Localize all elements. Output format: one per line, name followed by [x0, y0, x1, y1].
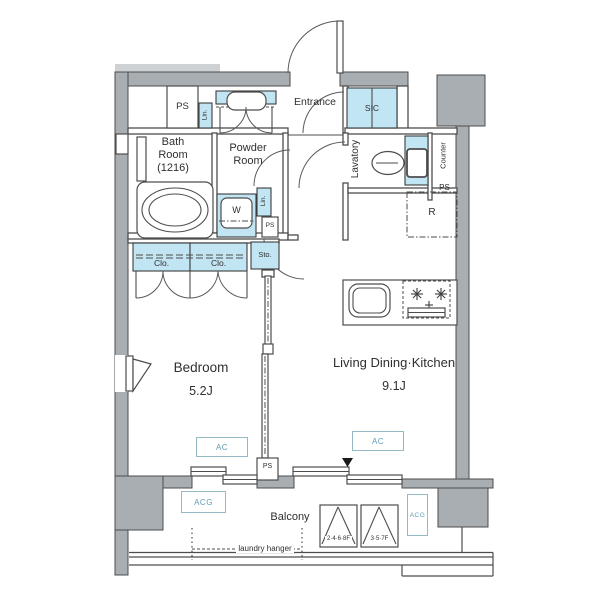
linen-label-1: Lin. [202, 104, 210, 125]
entrance-label: Entrance [283, 96, 347, 109]
toilet [372, 136, 428, 185]
hatch-label-odd: 3·5·7F [361, 536, 398, 543]
laundry-hanger-label: laundry hanger [212, 544, 318, 554]
bedroom-size: 5.2J [141, 384, 261, 399]
lavatory-label: Lavatory [350, 129, 362, 189]
closet-label-1: Clo. [133, 258, 190, 268]
hatch-odd-text: 3·5·7F [369, 536, 391, 542]
hatch-label-even: 2·4·6·8F [320, 536, 357, 543]
linen-label-2: Lin. [260, 190, 268, 212]
ps-label-right: PS [431, 183, 458, 193]
ac-box-bedroom: AC [196, 437, 248, 457]
closet-label-2: Clo. [190, 258, 247, 268]
ps-label-top: PS [167, 101, 198, 112]
bedroom-label: Bedroom 5.2J [141, 360, 261, 399]
washer-label: W [224, 205, 249, 216]
sliding-partition [262, 276, 273, 458]
acg-box-right: ACG [407, 494, 428, 536]
ldk-label: Living Dining·Kitchen 9.1J [310, 355, 478, 394]
ps-label-powder: PS [262, 222, 278, 230]
balcony-windows [191, 458, 402, 484]
bath-line2: Room [133, 149, 213, 162]
ps-label-bottom: PS [257, 463, 278, 471]
floorplan-drawing [0, 0, 600, 600]
kitchen-counter [343, 280, 457, 325]
powder-label: Powder Room [212, 142, 284, 168]
fridge-label: R [417, 207, 447, 219]
bedroom-name: Bedroom [141, 360, 261, 376]
laundry-hanger-text: laundry hanger [236, 544, 293, 553]
sic-label: SIC [347, 88, 397, 128]
bath-line3: (1216) [133, 162, 213, 175]
powder-line2: Room [212, 155, 284, 168]
powder-line1: Powder [212, 142, 284, 155]
bath-line1: Bath [133, 136, 213, 149]
ldk-size: 9.1J [310, 379, 478, 394]
counter-label: Counter [439, 134, 448, 178]
acg-box-left: ACG [181, 491, 226, 513]
storage-label: Sto. [251, 250, 279, 259]
bath-label: Bath Room (1216) [133, 136, 213, 176]
balcony-label: Balcony [255, 511, 325, 524]
ldk-name: Living Dining·Kitchen [310, 355, 478, 371]
washbasin [216, 91, 276, 133]
hatch-even-text: 2·4·6·8F [325, 536, 352, 542]
wall-shadow [115, 64, 220, 72]
entrance-door [288, 21, 344, 133]
closets [133, 243, 247, 298]
floorplan: Bedroom 5.2J Living Dining·Kitchen 9.1J … [0, 0, 600, 600]
direction-marker [342, 458, 353, 467]
ac-box-ldk: AC [352, 431, 404, 451]
